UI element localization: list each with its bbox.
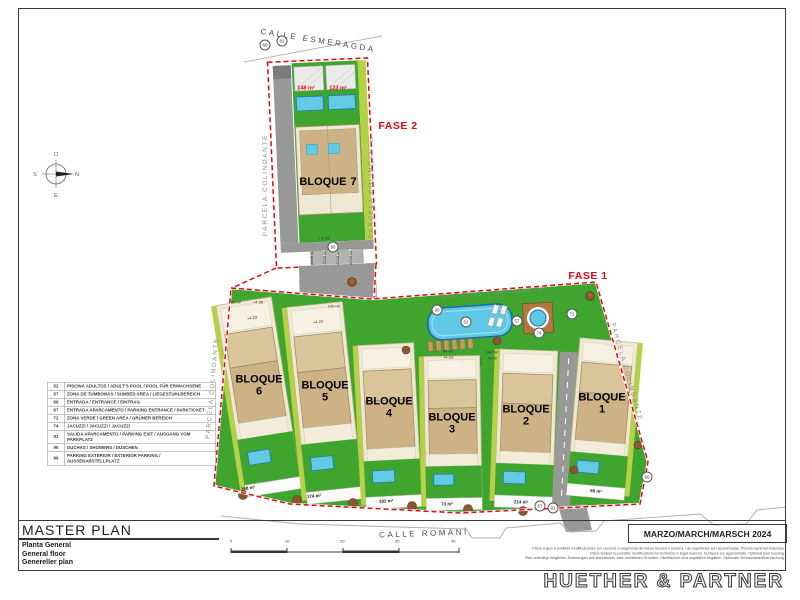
- sheet-frame: [18, 8, 786, 571]
- sheet-subtitles: Planta General General floor Genereller …: [22, 542, 73, 568]
- masterplan-sheet: O N E S CALLE ESMERAGDA CALLE ROMANÍ FAS…: [0, 0, 800, 600]
- subtitle-es: Planta General: [22, 542, 73, 551]
- subtitle-en: General floor: [22, 551, 73, 560]
- company-logo: HUETHER & PARTNER: [543, 571, 784, 593]
- titleblock-divider: [18, 520, 785, 521]
- scale-bar-graphic: [230, 540, 466, 556]
- title-rule: [19, 538, 219, 540]
- sheet-title: MASTER PLAN: [22, 522, 132, 538]
- date-box: MARZO/MARCH/MARSCH 2024: [628, 524, 787, 543]
- subtitle-de: Genereller plan: [22, 559, 73, 568]
- disclaimer-text: Plano sujeto a posibles modificaciones p…: [490, 546, 785, 560]
- scale-bar: 0 10 20 30 40: [230, 540, 466, 556]
